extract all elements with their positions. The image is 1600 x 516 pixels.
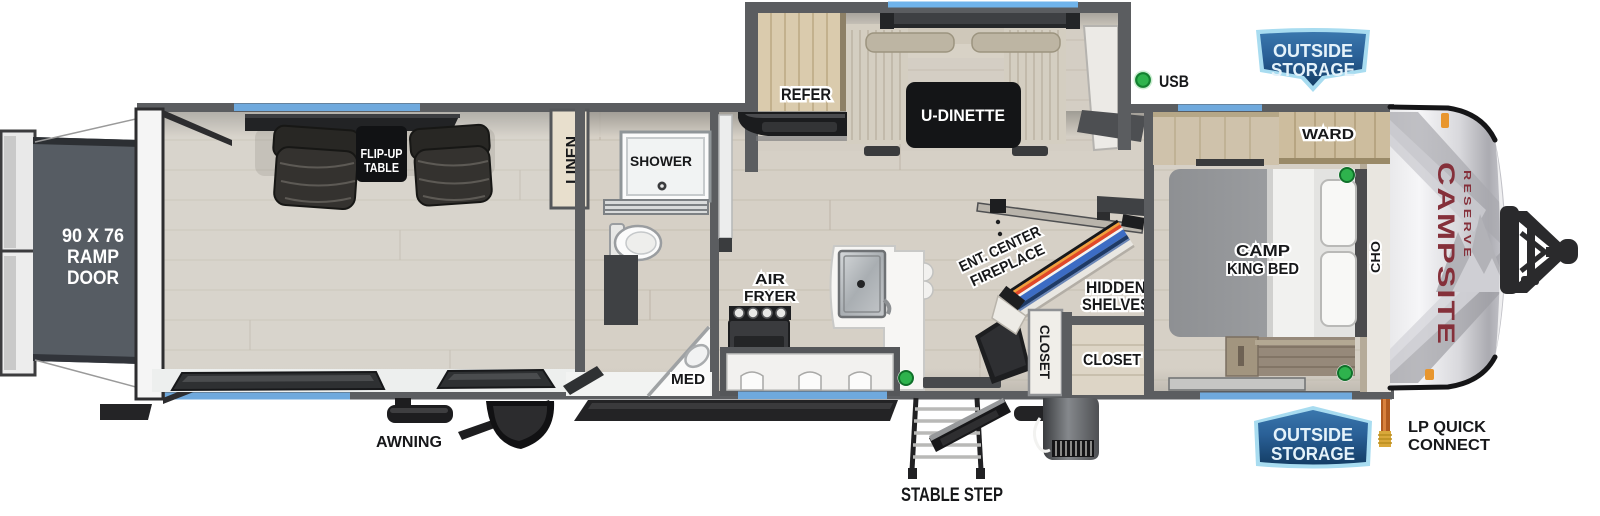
svg-text:TABLE: TABLE [364,161,399,175]
svg-text:KING BED: KING BED [1227,261,1299,278]
svg-text:USB: USB [1159,72,1189,91]
svg-text:CLOSET: CLOSET [1083,352,1141,369]
svg-text:RESERVE: RESERVE [1461,170,1473,260]
svg-text:CONNECT: CONNECT [1408,437,1490,454]
svg-text:STORAGE: STORAGE [1271,444,1355,464]
svg-text:DOOR: DOOR [67,268,119,289]
svg-text:OUTSIDE: OUTSIDE [1273,41,1353,61]
svg-text:FRYER: FRYER [744,288,796,305]
svg-text:CAMP: CAMP [1236,243,1290,260]
svg-text:90 X 76: 90 X 76 [62,226,124,247]
svg-text:U-DINETTE: U-DINETTE [921,106,1005,125]
svg-text:FLIP-UP: FLIP-UP [361,147,403,161]
svg-text:OUTSIDE: OUTSIDE [1273,425,1353,445]
svg-text:CHO: CHO [1368,241,1383,273]
svg-text:AWNING: AWNING [376,434,442,451]
svg-text:CLOSET: CLOSET [1037,325,1053,379]
svg-text:SHOWER: SHOWER [630,153,692,169]
svg-text:WARD: WARD [1302,126,1354,143]
svg-text:STORAGE: STORAGE [1271,60,1355,80]
svg-text:CAMPSITE: CAMPSITE [1432,162,1459,346]
svg-text:MED: MED [671,371,705,388]
svg-text:LP QUICK: LP QUICK [1408,419,1486,436]
svg-text:SHELVES: SHELVES [1082,295,1150,314]
svg-text:RAMP: RAMP [67,247,119,268]
svg-text:REFER: REFER [781,85,831,104]
svg-text:AIR: AIR [755,271,785,288]
svg-text:STABLE STEP: STABLE STEP [901,485,1003,506]
